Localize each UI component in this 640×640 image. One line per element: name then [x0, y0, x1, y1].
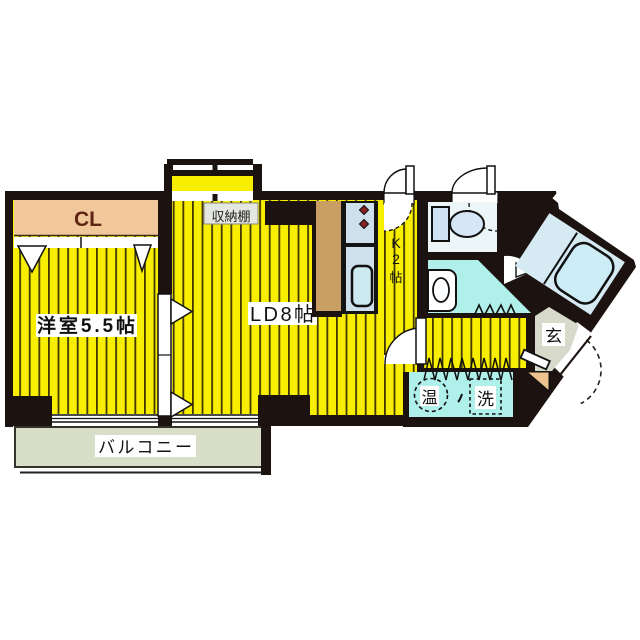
- svg-text:帖: 帖: [389, 270, 402, 285]
- svg-text:2: 2: [392, 251, 400, 267]
- svg-text:収納棚: 収納棚: [211, 209, 250, 224]
- svg-text:洗: 洗: [477, 390, 494, 409]
- svg-text:LD8帖: LD8帖: [250, 303, 314, 326]
- svg-text:K: K: [391, 235, 401, 251]
- svg-text:洋室5.5帖: 洋室5.5帖: [37, 314, 135, 337]
- svg-text:バルコニー: バルコニー: [98, 438, 192, 457]
- svg-text:CL: CL: [74, 208, 102, 231]
- svg-text:温: 温: [421, 389, 437, 407]
- svg-text:玄: 玄: [545, 327, 562, 346]
